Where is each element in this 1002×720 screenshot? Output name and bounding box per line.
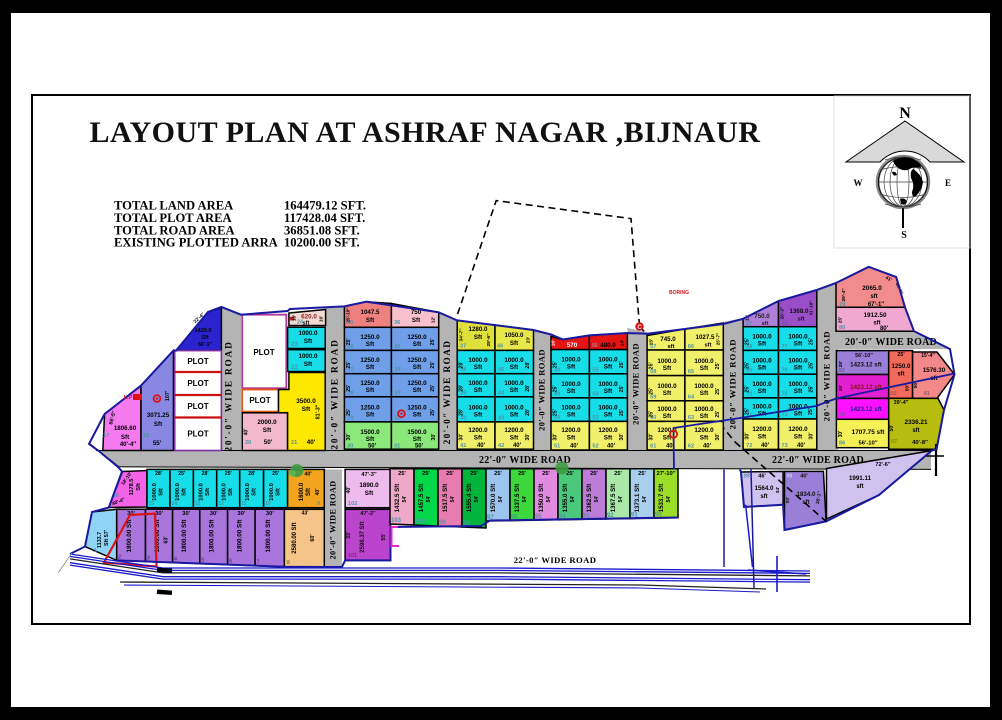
- svg-text:25': 25': [808, 338, 814, 345]
- svg-text:1000.0: 1000.0: [245, 483, 251, 501]
- svg-text:25'-10″: 25'-10″: [346, 307, 351, 323]
- svg-text:1: 1: [94, 548, 97, 554]
- svg-text:Sft: Sft: [252, 488, 258, 496]
- svg-text:1000.0: 1000.0: [788, 334, 808, 341]
- svg-text:Sft 57': Sft 57': [104, 530, 110, 546]
- svg-text:2598.37 Sft: 2598.37 Sft: [360, 521, 366, 552]
- svg-text:Sft: Sft: [794, 434, 803, 441]
- svg-text:Sft: Sft: [794, 388, 803, 395]
- svg-text:56'-10″: 56'-10″: [855, 353, 873, 359]
- svg-text:1250.0: 1250.0: [360, 380, 380, 387]
- svg-text:25': 25': [178, 471, 185, 477]
- svg-text:Sft: Sft: [413, 387, 422, 394]
- svg-text:PLOT: PLOT: [253, 348, 274, 357]
- svg-text:1050.0: 1050.0: [505, 332, 524, 339]
- svg-text:25': 25': [430, 362, 436, 369]
- svg-text:25': 25': [649, 388, 655, 395]
- svg-text:80: 80: [839, 325, 845, 331]
- svg-text:15'-4″: 15'-4″: [921, 353, 935, 359]
- svg-text:Sft: Sft: [474, 387, 483, 394]
- svg-text:63': 63': [164, 536, 170, 543]
- svg-text:43: 43: [498, 415, 504, 421]
- svg-text:Sft: Sft: [604, 435, 613, 442]
- svg-text:28'-6″: 28'-6″: [486, 333, 492, 347]
- svg-text:Sft: Sft: [413, 364, 422, 371]
- svg-text:54': 54': [522, 496, 528, 503]
- svg-text:10200.00 SFT.: 10200.00 SFT.: [284, 236, 360, 250]
- svg-text:40': 40': [797, 443, 806, 449]
- svg-text:40': 40': [703, 444, 712, 450]
- svg-text:25': 25': [614, 471, 622, 477]
- svg-text:11: 11: [241, 501, 247, 507]
- svg-text:LAYOUT PLAN AT ASHRAF NAGAR ,B: LAYOUT PLAN AT ASHRAF NAGAR ,BIJNAUR: [90, 116, 761, 149]
- svg-text:10: 10: [265, 501, 271, 507]
- svg-text:Sft: Sft: [567, 388, 576, 395]
- svg-text:Sft: Sft: [510, 387, 519, 394]
- svg-text:1368.0: 1368.0: [790, 308, 809, 315]
- svg-text:51: 51: [554, 444, 560, 450]
- svg-text:L.P: L.P: [124, 395, 133, 401]
- svg-text:99: 99: [439, 520, 446, 526]
- svg-text:1500.0: 1500.0: [407, 429, 427, 436]
- svg-text:1362.5 Sft: 1362.5 Sft: [586, 484, 593, 512]
- svg-text:25': 25': [422, 471, 430, 477]
- svg-text:Sft: Sft: [663, 390, 672, 397]
- svg-text:30': 30': [808, 432, 814, 439]
- svg-text:Sft: Sft: [413, 436, 422, 443]
- svg-text:Sft: Sft: [474, 364, 483, 371]
- svg-text:1373.1 Sft: 1373.1 Sft: [634, 484, 641, 512]
- svg-text:Sft: Sft: [366, 411, 375, 418]
- svg-text:3071.25: 3071.25: [147, 412, 170, 419]
- svg-text:73: 73: [782, 443, 788, 449]
- svg-text:18: 18: [143, 433, 149, 439]
- svg-text:Sft: Sft: [366, 436, 375, 443]
- svg-text:8: 8: [287, 560, 290, 566]
- svg-text:12: 12: [218, 501, 224, 507]
- svg-text:28': 28': [459, 362, 465, 369]
- svg-text:72'-6″: 72'-6″: [875, 462, 891, 468]
- svg-text:40': 40': [244, 428, 250, 435]
- svg-text:25': 25': [838, 317, 844, 323]
- svg-text:25': 25': [745, 408, 751, 415]
- svg-text:2336.21: 2336.21: [904, 419, 928, 426]
- svg-text:31: 31: [394, 444, 400, 450]
- svg-text:1800.00 Sft: 1800.00 Sft: [209, 519, 216, 553]
- svg-text:C: C: [637, 325, 642, 331]
- svg-text:1250.0: 1250.0: [407, 404, 427, 411]
- svg-text:25': 25': [715, 388, 721, 395]
- svg-text:1457.5 Sft: 1457.5 Sft: [418, 484, 425, 512]
- svg-text:6: 6: [229, 559, 232, 565]
- svg-text:sft: sft: [897, 372, 904, 378]
- svg-text:25': 25': [346, 362, 352, 369]
- svg-text:50': 50': [415, 444, 424, 450]
- svg-text:1337.5 Sft: 1337.5 Sft: [514, 484, 521, 512]
- svg-text:Sft: Sft: [758, 364, 767, 371]
- svg-text:23': 23': [526, 337, 532, 343]
- svg-text:Sft: Sft: [700, 390, 709, 397]
- svg-text:30': 30': [745, 432, 751, 439]
- svg-text:Sft: Sft: [758, 388, 767, 395]
- svg-text:72: 72: [746, 443, 752, 449]
- svg-text:sft: sft: [704, 343, 711, 349]
- svg-text:Sft: Sft: [474, 334, 482, 341]
- svg-text:1000.0: 1000.0: [657, 358, 677, 365]
- svg-text:sft: sft: [797, 317, 804, 323]
- svg-text:30': 30': [553, 433, 559, 440]
- svg-text:1000.0: 1000.0: [752, 334, 772, 341]
- svg-text:1000.0: 1000.0: [504, 404, 524, 411]
- svg-text:Sft: Sft: [510, 435, 519, 442]
- svg-text:86: 86: [839, 441, 845, 447]
- svg-text:1047.5: 1047.5: [361, 309, 380, 316]
- svg-text:25': 25': [808, 362, 814, 369]
- svg-text:83: 83: [839, 368, 845, 374]
- svg-text:20'-0″ WIDE ROAD: 20'-0″ WIDE ROAD: [822, 331, 832, 422]
- svg-text:20'-0″ WIDE ROAD: 20'-0″ WIDE ROAD: [443, 340, 453, 445]
- svg-text:2580.00 Sft: 2580.00 Sft: [292, 522, 298, 553]
- svg-text:26'-2″: 26'-2″: [780, 306, 785, 319]
- svg-text:55': 55': [346, 531, 352, 538]
- svg-text:Sft: Sft: [276, 488, 282, 496]
- svg-text:12': 12': [431, 317, 437, 323]
- svg-text:9: 9: [317, 501, 320, 507]
- svg-text:PLOT: PLOT: [187, 379, 208, 388]
- svg-text:Sft: Sft: [304, 361, 312, 368]
- svg-text:Sft: Sft: [366, 317, 374, 324]
- svg-text:25': 25': [430, 409, 436, 416]
- svg-text:41: 41: [460, 443, 466, 449]
- svg-text:88: 88: [787, 474, 793, 480]
- svg-text:sft: sft: [760, 494, 767, 500]
- svg-text:1800.00 Sft: 1800.00 Sft: [236, 519, 243, 553]
- svg-text:22'-0″ WIDE ROAD: 22'-0″ WIDE ROAD: [514, 555, 597, 565]
- svg-text:62: 62: [688, 444, 694, 450]
- svg-text:81: 81: [924, 391, 930, 397]
- svg-text:28': 28': [459, 409, 465, 416]
- svg-text:25': 25': [838, 361, 844, 367]
- svg-text:30': 30': [210, 511, 218, 517]
- svg-text:54': 54': [426, 496, 432, 503]
- svg-text:1350.0 Sft: 1350.0 Sft: [538, 484, 545, 512]
- svg-text:29'-4″: 29'-4″: [841, 288, 847, 302]
- svg-text:25': 25': [566, 471, 574, 477]
- svg-text:40': 40': [315, 488, 321, 495]
- svg-text:13: 13: [195, 501, 201, 507]
- svg-text:25': 25': [619, 361, 625, 368]
- svg-text:81'-3″: 81'-3″: [316, 404, 322, 419]
- svg-text:Sft: Sft: [205, 488, 211, 496]
- svg-text:1200.0: 1200.0: [788, 426, 808, 433]
- svg-text:1200.0: 1200.0: [504, 427, 524, 434]
- svg-text:1355.0 Sft: 1355.0 Sft: [562, 484, 569, 512]
- svg-text:1000.0: 1000.0: [752, 403, 772, 410]
- svg-text:Sft: Sft: [413, 411, 422, 418]
- svg-text:50': 50': [889, 425, 895, 432]
- svg-text:Sft: Sft: [758, 434, 767, 441]
- svg-text:W: W: [854, 178, 863, 188]
- svg-text:1000.0: 1000.0: [504, 357, 524, 364]
- svg-text:30': 30': [431, 433, 437, 440]
- svg-text:1000.0: 1000.0: [694, 383, 714, 390]
- svg-text:40': 40': [513, 443, 522, 449]
- svg-text:1133.7: 1133.7: [97, 532, 103, 548]
- svg-text:1533.7 Sft: 1533.7 Sft: [658, 484, 665, 512]
- svg-text:25': 25': [552, 409, 558, 416]
- svg-text:27'-10″: 27'-10″: [657, 471, 676, 477]
- svg-text:Sft: Sft: [302, 406, 311, 413]
- svg-text:1367.5 Sft: 1367.5 Sft: [610, 484, 617, 512]
- svg-text:16': 16': [319, 316, 324, 322]
- svg-text:25'-7″: 25'-7″: [716, 332, 721, 345]
- svg-text:25': 25': [494, 471, 502, 477]
- svg-text:1517.5 Sft: 1517.5 Sft: [442, 484, 449, 512]
- svg-text:1000.0: 1000.0: [598, 405, 618, 412]
- svg-text:25': 25': [430, 385, 436, 392]
- svg-text:1000.0: 1000.0: [222, 483, 228, 501]
- svg-text:1890.0: 1890.0: [359, 482, 379, 489]
- svg-text:Sft: Sft: [700, 365, 709, 372]
- svg-text:28': 28': [202, 471, 209, 477]
- svg-text:25': 25': [638, 471, 646, 477]
- svg-text:Sft: Sft: [366, 387, 375, 394]
- svg-text:63: 63: [688, 415, 694, 421]
- svg-text:1564.0: 1564.0: [755, 485, 774, 492]
- svg-text:56'-10″: 56'-10″: [859, 441, 878, 447]
- svg-text:54': 54': [474, 496, 480, 503]
- svg-text:30': 30': [155, 511, 163, 517]
- svg-text:40'-8″: 40'-8″: [912, 440, 928, 446]
- svg-text:1423.12 sft: 1423.12 sft: [850, 362, 882, 369]
- svg-text:Sft: Sft: [794, 364, 803, 371]
- svg-text:15: 15: [149, 501, 155, 507]
- svg-text:44: 44: [498, 390, 505, 396]
- svg-text:25': 25': [715, 362, 721, 369]
- svg-text:Sft: Sft: [413, 341, 422, 348]
- svg-text:14': 14': [620, 340, 626, 346]
- svg-text:30': 30': [838, 431, 844, 438]
- svg-text:1000.0: 1000.0: [694, 358, 714, 365]
- svg-text:Sft: Sft: [663, 365, 672, 372]
- svg-text:1800.00 Sft: 1800.00 Sft: [265, 519, 272, 553]
- svg-text:Sft: Sft: [154, 421, 162, 428]
- svg-text:1912.50: 1912.50: [863, 312, 887, 319]
- svg-text:35: 35: [394, 344, 400, 350]
- svg-text:14: 14: [172, 501, 178, 507]
- svg-text:52: 52: [592, 444, 598, 450]
- svg-text:480.0: 480.0: [600, 342, 616, 349]
- svg-text:620.0: 620.0: [301, 314, 317, 321]
- svg-text:22: 22: [291, 364, 298, 371]
- svg-text:1600.0: 1600.0: [299, 482, 305, 501]
- svg-text:107': 107': [165, 391, 171, 401]
- svg-text:1200.0: 1200.0: [694, 427, 714, 434]
- svg-text:Sft: Sft: [567, 435, 576, 442]
- svg-text:1000.0: 1000.0: [504, 380, 524, 387]
- svg-text:47'-3″: 47'-3″: [360, 511, 376, 517]
- svg-text:102: 102: [348, 501, 357, 507]
- svg-text:28': 28': [525, 385, 531, 392]
- svg-text:25': 25': [649, 411, 655, 418]
- svg-text:1027.5: 1027.5: [696, 334, 715, 341]
- svg-text:25': 25': [808, 408, 814, 415]
- svg-text:sft: sft: [856, 484, 863, 490]
- svg-text:Sft: Sft: [228, 488, 234, 496]
- svg-text:25': 25': [619, 409, 625, 416]
- svg-text:40': 40': [307, 439, 316, 446]
- svg-text:65: 65: [688, 369, 694, 375]
- svg-text:25': 25': [715, 411, 721, 418]
- svg-text:25': 25': [518, 471, 526, 477]
- svg-text:Sft: Sft: [510, 364, 519, 371]
- svg-text:Sft: Sft: [304, 338, 312, 345]
- svg-text:25': 25': [346, 385, 352, 392]
- svg-text:28': 28': [525, 362, 531, 369]
- svg-text:13': 13': [292, 315, 297, 321]
- svg-text:Sft: Sft: [604, 412, 613, 419]
- svg-text:1000.0: 1000.0: [598, 381, 618, 388]
- svg-text:28': 28': [248, 471, 255, 477]
- svg-text:50': 50': [785, 497, 791, 503]
- svg-text:41'-10″: 41'-10″: [809, 300, 814, 316]
- svg-text:Sft: Sft: [567, 412, 576, 419]
- svg-text:77: 77: [782, 344, 788, 350]
- svg-text:1432.5 Sft: 1432.5 Sft: [394, 484, 401, 512]
- svg-text:1250.0: 1250.0: [360, 357, 380, 364]
- svg-text:25': 25': [745, 386, 751, 393]
- svg-text:1806.60: 1806.60: [114, 425, 137, 432]
- svg-text:54': 54': [498, 496, 504, 503]
- svg-text:1200.0: 1200.0: [752, 426, 772, 433]
- svg-text:25': 25': [225, 471, 232, 477]
- svg-text:25': 25': [553, 361, 559, 368]
- svg-text:25': 25': [542, 471, 550, 477]
- svg-text:25': 25': [430, 338, 436, 345]
- svg-text:1423.12 sft: 1423.12 sft: [850, 406, 882, 413]
- svg-text:80': 80': [880, 326, 889, 332]
- svg-text:15': 15': [649, 339, 655, 345]
- svg-text:Sft: Sft: [365, 490, 374, 497]
- svg-text:20'-0″ WIDE ROAD: 20'-0″ WIDE ROAD: [329, 480, 338, 559]
- svg-text:1570.0 Sft: 1570.0 Sft: [490, 484, 497, 512]
- svg-text:1000.0: 1000.0: [788, 357, 808, 364]
- svg-text:sft: sft: [912, 428, 919, 434]
- svg-text:1000.0: 1000.0: [152, 483, 158, 501]
- svg-text:1800.00 Sft: 1800.00 Sft: [181, 519, 188, 553]
- svg-text:25': 25': [745, 362, 751, 369]
- svg-text:34': 34': [775, 487, 781, 493]
- svg-text:30: 30: [347, 444, 353, 450]
- svg-text:33: 33: [394, 390, 400, 396]
- svg-text:54': 54': [402, 496, 408, 503]
- svg-text:54': 54': [618, 496, 624, 503]
- svg-text:PLOT: PLOT: [187, 430, 208, 439]
- svg-text:28': 28': [459, 385, 465, 392]
- svg-text:2000.0: 2000.0: [257, 419, 277, 426]
- svg-text:30': 30': [346, 433, 352, 440]
- svg-text:1000.0: 1000.0: [598, 357, 618, 364]
- svg-text:1250.0: 1250.0: [360, 404, 380, 411]
- svg-text:30': 30': [459, 433, 465, 440]
- svg-text:EXISTING PLOTTED ARRA: EXISTING PLOTTED ARRA: [114, 236, 278, 250]
- svg-text:Sft: Sft: [182, 488, 188, 496]
- svg-text:54': 54': [570, 496, 576, 503]
- svg-text:103: 103: [391, 518, 402, 524]
- svg-text:Sft: Sft: [474, 411, 483, 418]
- svg-text:Sft: Sft: [700, 435, 709, 442]
- svg-text:1000.0: 1000.0: [752, 381, 772, 388]
- svg-text:42: 42: [498, 443, 504, 449]
- svg-text:85: 85: [840, 412, 846, 418]
- svg-text:Sft: Sft: [412, 317, 420, 324]
- svg-text:Sft: Sft: [366, 364, 375, 371]
- svg-text:Sft: Sft: [366, 341, 375, 348]
- svg-text:40': 40': [570, 444, 579, 450]
- svg-text:1500.0: 1500.0: [360, 429, 380, 436]
- svg-text:21: 21: [291, 440, 297, 446]
- svg-text:570: 570: [567, 342, 578, 349]
- svg-text:45: 45: [498, 367, 504, 373]
- svg-text:20'-0″ WIDE ROAD: 20'-0″ WIDE ROAD: [845, 337, 937, 348]
- svg-text:1178.5: 1178.5: [129, 479, 135, 496]
- svg-text:40': 40': [761, 443, 770, 449]
- svg-text:N: N: [899, 105, 911, 122]
- svg-text:Sft: Sft: [201, 335, 209, 341]
- svg-text:40'-4″: 40'-4″: [120, 442, 136, 448]
- svg-text:61: 61: [650, 444, 656, 450]
- svg-text:PLOT: PLOT: [187, 357, 208, 366]
- svg-text:Sft: Sft: [159, 488, 165, 496]
- svg-text:1000.0: 1000.0: [269, 483, 275, 501]
- svg-text:25': 25': [553, 385, 559, 392]
- svg-text:25': 25': [470, 471, 478, 477]
- svg-text:Sft: Sft: [794, 341, 803, 348]
- svg-text:75: 75: [782, 391, 788, 397]
- svg-text:50': 50': [264, 439, 273, 446]
- svg-text:55': 55': [153, 440, 162, 447]
- svg-text:39'-4″: 39'-4″: [894, 400, 909, 406]
- svg-text:17: 17: [103, 433, 109, 439]
- svg-text:2065.0: 2065.0: [862, 285, 882, 292]
- svg-text:25': 25': [346, 409, 352, 416]
- svg-text:40': 40': [477, 443, 486, 449]
- svg-text:20'-0″ WIDE ROAD: 20'-0″ WIDE ROAD: [331, 338, 341, 449]
- svg-text:1000.0: 1000.0: [657, 406, 677, 413]
- svg-text:30': 30': [715, 433, 721, 440]
- svg-text:20'-0″ WIDE ROAD: 20'-0″ WIDE ROAD: [225, 340, 235, 451]
- svg-text:PLOT: PLOT: [187, 402, 208, 411]
- svg-text:40': 40': [304, 472, 311, 478]
- svg-text:50': 50': [368, 444, 377, 450]
- svg-text:54': 54': [666, 496, 672, 503]
- svg-text:25': 25': [446, 471, 454, 477]
- svg-text:50': 50': [905, 385, 911, 391]
- svg-text:Sft: Sft: [121, 434, 129, 441]
- svg-text:24: 24: [297, 320, 303, 326]
- svg-text:25': 25': [838, 385, 844, 391]
- svg-text:20'-0″ WIDE ROAD: 20'-0″ WIDE ROAD: [631, 343, 641, 425]
- svg-text:S: S: [901, 230, 907, 241]
- svg-text:101: 101: [348, 553, 357, 559]
- svg-text:sft: sft: [870, 294, 877, 300]
- svg-text:Sft: Sft: [567, 364, 576, 371]
- svg-text:40': 40': [346, 486, 352, 493]
- svg-text:4: 4: [174, 557, 177, 563]
- svg-text:1800.00 Sft: 1800.00 Sft: [126, 519, 133, 553]
- svg-text:1250.0: 1250.0: [360, 334, 380, 341]
- svg-text:89: 89: [744, 474, 750, 480]
